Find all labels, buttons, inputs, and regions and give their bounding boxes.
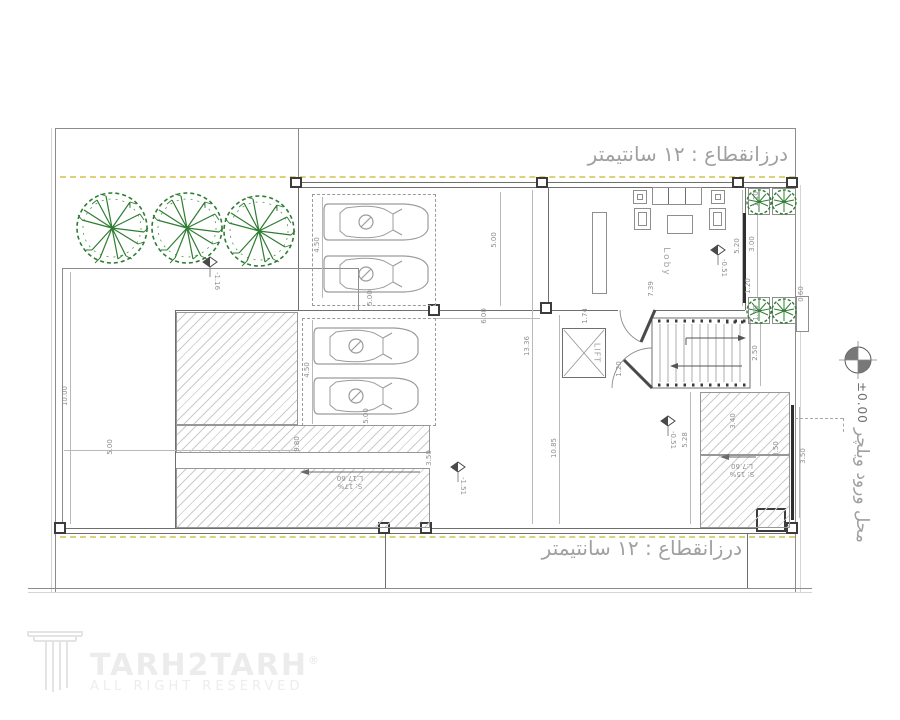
- car-icon: [324, 204, 428, 240]
- level-value-lobby: -0.51: [720, 259, 728, 277]
- logo-registered-mark: ®: [308, 654, 321, 667]
- ramp-entry-length: L:7.60: [731, 462, 753, 470]
- logo-tagline: ALL RIGHT RESERVED: [90, 679, 321, 694]
- dim-label: 3.50: [425, 450, 433, 466]
- ramp-main-slope: S: 17%: [338, 482, 363, 490]
- ramp-entry-note: S: 15% L:7.60: [730, 462, 755, 478]
- logo-name: TARH2TARH®: [90, 652, 321, 679]
- dim-label: 10.85: [550, 438, 558, 458]
- bush-icon: [772, 190, 796, 214]
- wheelchair-note: محل ورود ویلچر: [852, 428, 872, 543]
- door-leaf: [624, 360, 652, 388]
- dim-label: 0.60: [797, 286, 805, 302]
- dim-label: 13.36: [523, 336, 531, 356]
- dim-label: 4.50: [313, 237, 321, 253]
- dim-label: 5.00: [490, 232, 498, 248]
- level-value-parking: -1.51: [459, 477, 467, 495]
- dim-label: 1.20: [744, 278, 752, 294]
- dim-label: 3.00: [748, 236, 756, 252]
- dim-label: 3.50: [772, 441, 780, 457]
- benchmark-marker: [839, 341, 877, 379]
- ramp-main-note: S: 17% L:17.60: [337, 474, 363, 490]
- floor-plan-canvas: درزانقطاع : ۱۲ سانتیمتر درزانقطاع : ۱۲ س…: [0, 0, 900, 720]
- car-icon: [314, 328, 418, 364]
- dim-label: 5.00: [366, 290, 374, 306]
- dim-label: 5.20: [733, 238, 741, 254]
- level-value-yard: -1.16: [213, 272, 221, 290]
- joint-note-bottom: درزانقطاع : ۱۲ سانتیمتر: [542, 536, 742, 560]
- dim-label: 5.00: [362, 408, 370, 424]
- level-value-ramp: -0.51: [669, 431, 677, 449]
- dim-label: 5.28: [681, 432, 689, 448]
- dim-label: 6.00: [480, 308, 488, 324]
- dim-label: 5.00: [106, 439, 114, 455]
- tree-icon: [77, 193, 148, 263]
- dim-label: 1.10: [752, 305, 760, 321]
- lift-label: LIFT: [593, 343, 602, 363]
- benchmark-level-text: ±0.00: [855, 382, 869, 424]
- car-icon: [324, 256, 428, 292]
- dim-label: 1.10: [752, 191, 760, 207]
- tree-icon: [152, 193, 223, 263]
- dim-label: 4.50: [303, 362, 311, 378]
- door-arc: [620, 310, 641, 342]
- dim-label: 1.74: [581, 308, 589, 324]
- watermark-logo: TARH2TARH® ALL RIGHT RESERVED: [26, 630, 321, 694]
- dim-label: 1.20: [615, 361, 623, 377]
- tree-icon: [224, 196, 295, 266]
- door-leaf: [641, 310, 655, 342]
- plan-graphics-layer: [0, 0, 900, 720]
- ramp-main-length: L:17.60: [337, 474, 363, 482]
- dim-label: 3.40: [729, 413, 737, 429]
- dim-label: 9.80: [293, 436, 301, 452]
- pillar-icon: [26, 630, 84, 694]
- lobby-label: Loby: [661, 247, 671, 276]
- joint-note-top: درزانقطاع : ۱۲ سانتیمتر: [588, 142, 788, 166]
- dim-label: 7.39: [647, 281, 655, 297]
- staircase: [652, 318, 750, 388]
- bush-icon: [772, 299, 796, 323]
- ramp-entry-slope: S: 15%: [730, 470, 755, 478]
- dim-label: 10.00: [61, 386, 69, 406]
- dim-label: 3.50: [799, 448, 807, 464]
- dim-label: 2.50: [751, 345, 759, 361]
